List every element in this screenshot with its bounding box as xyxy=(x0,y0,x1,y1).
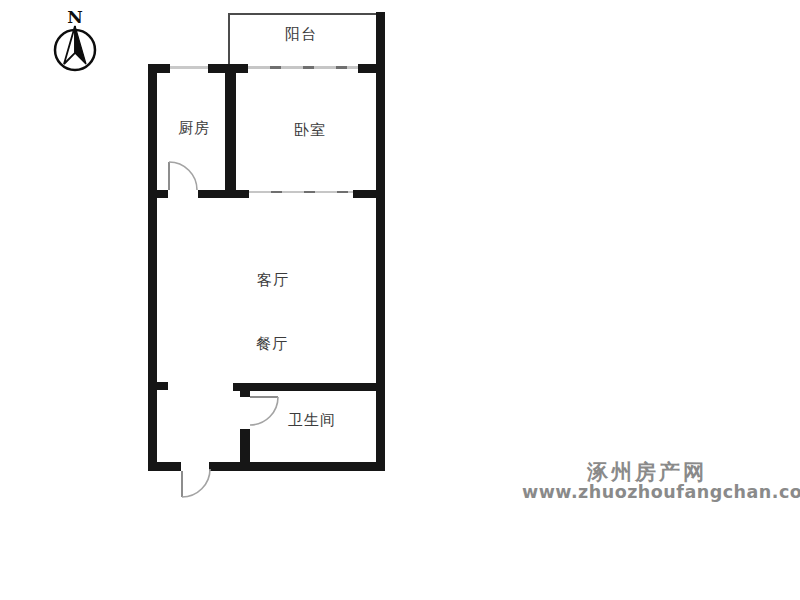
wall-top-segment-3 xyxy=(358,64,385,73)
balcony-top-line xyxy=(228,13,378,15)
room-label-dining: 餐厅 xyxy=(256,335,288,354)
compass-needle-east-icon xyxy=(75,26,86,64)
floorplan-image: N 阳台 厨房 卧室 客厅 餐厅 卫生间 涿州房产网 www.zhuozhouf… xyxy=(0,0,800,600)
bathroom-door-leaf xyxy=(250,396,278,398)
door-arcs xyxy=(0,0,800,600)
compass-circle-icon xyxy=(55,30,95,70)
wall-bathroom-left-lower xyxy=(240,429,250,462)
wall-bathroom-left-upper xyxy=(240,383,250,397)
wall-top-segment-1 xyxy=(148,64,170,73)
wall-kitchen-bottom-left xyxy=(148,190,168,198)
wall-bedroom-bottom-right xyxy=(353,190,385,198)
watermark-site-url: www.zhuozhoufangchan.com xyxy=(522,482,772,502)
balcony-door-window xyxy=(248,66,358,69)
kitchen-door-leaf xyxy=(168,162,170,190)
north-label: N xyxy=(67,7,83,27)
north-compass: N xyxy=(0,0,150,90)
room-label-kitchen: 厨房 xyxy=(178,119,210,138)
kitchen-window xyxy=(170,66,208,69)
balcony-left-line xyxy=(228,13,230,66)
bathroom-door-arc xyxy=(250,397,278,425)
wall-left xyxy=(148,64,157,471)
room-label-bathroom: 卫生间 xyxy=(288,411,336,430)
entrance-door-leaf xyxy=(181,471,183,497)
wall-kitchen-bottom-right xyxy=(198,190,249,198)
wall-bathroom-top xyxy=(233,383,385,391)
kitchen-door-arc xyxy=(169,162,197,190)
wall-kitchen-bedroom-divider xyxy=(225,64,236,198)
entrance-door-arc xyxy=(182,469,210,497)
room-label-living: 客厅 xyxy=(257,271,289,290)
wall-bottom-segment-1 xyxy=(148,462,181,471)
wall-right xyxy=(376,12,385,471)
room-label-bedroom: 卧室 xyxy=(294,121,326,140)
compass-needle-west-icon xyxy=(64,26,75,64)
bedroom-sliding-window xyxy=(249,191,353,193)
wall-bottom-segment-2 xyxy=(209,462,385,471)
room-label-balcony: 阳台 xyxy=(285,25,317,44)
wall-left-stub xyxy=(148,382,168,390)
